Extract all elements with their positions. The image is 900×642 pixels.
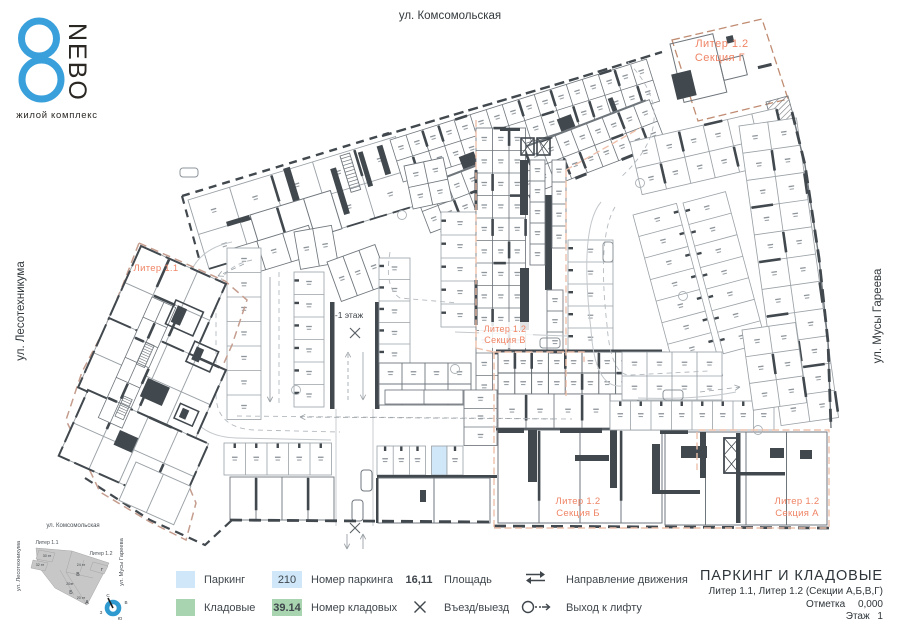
svg-text:ПАРКИНГ И КЛАДОВЫЕ: ПАРКИНГ И КЛАДОВЫЕ bbox=[700, 568, 883, 584]
svg-text:Въезд/выезд: Въезд/выезд bbox=[444, 602, 510, 614]
svg-text:Номер паркинга: Номер паркинга bbox=[311, 574, 394, 586]
svg-text:Литер 1.1: Литер 1.1 bbox=[134, 263, 179, 274]
svg-text:Этаж 1: Этаж 1 bbox=[846, 611, 884, 622]
svg-text:NEBO: NEBO bbox=[63, 23, 91, 102]
svg-text:А: А bbox=[85, 600, 89, 606]
svg-text:ул. Мусы Гареева: ул. Мусы Гареева bbox=[119, 537, 125, 586]
svg-text:20 эт: 20 эт bbox=[77, 596, 86, 600]
svg-text:Литер 1.2: Литер 1.2 bbox=[556, 496, 601, 507]
svg-text:З: З bbox=[100, 610, 103, 615]
svg-text:-1 этаж: -1 этаж bbox=[335, 310, 364, 320]
svg-text:Секция Б: Секция Б bbox=[556, 508, 599, 519]
svg-text:20эт: 20эт bbox=[66, 582, 74, 586]
svg-text:жилой комплекс: жилой комплекс bbox=[16, 110, 97, 121]
svg-text:Литер 1.2: Литер 1.2 bbox=[775, 496, 820, 507]
svg-text:ул. Комсомольская: ул. Комсомольская bbox=[399, 10, 501, 22]
svg-text:Литер 1.2: Литер 1.2 bbox=[484, 324, 527, 334]
svg-text:210: 210 bbox=[278, 574, 296, 586]
svg-text:Литер 1.2: Литер 1.2 bbox=[695, 38, 748, 50]
svg-text:Площадь: Площадь bbox=[444, 574, 492, 586]
svg-text:В: В bbox=[124, 600, 127, 605]
svg-text:Секция В: Секция В bbox=[484, 335, 525, 345]
svg-text:Литер 1.1, Литер 1.2 (Секции А: Литер 1.1, Литер 1.2 (Секции А,Б,В,Г) bbox=[709, 586, 883, 597]
svg-text:Выход к лифту: Выход к лифту bbox=[566, 602, 642, 614]
svg-text:ул. Лесотехникума: ул. Лесотехникума bbox=[16, 540, 22, 591]
svg-text:24 эт: 24 эт bbox=[77, 563, 86, 567]
svg-text:32 эт: 32 эт bbox=[36, 563, 45, 567]
svg-text:Ю: Ю bbox=[118, 616, 123, 621]
svg-text:Отметка 0,000: Отметка 0,000 bbox=[806, 599, 883, 610]
svg-text:Секция Г: Секция Г bbox=[695, 52, 745, 64]
svg-text:Направление движения: Направление движения bbox=[566, 574, 688, 586]
svg-text:16,11: 16,11 bbox=[406, 574, 433, 586]
svg-text:Секция А: Секция А bbox=[775, 508, 819, 519]
svg-text:В: В bbox=[76, 572, 80, 578]
svg-text:Кладовые: Кладовые bbox=[204, 602, 255, 614]
svg-text:Б: Б bbox=[69, 590, 73, 596]
svg-text:Литер 1.2: Литер 1.2 bbox=[89, 551, 112, 557]
svg-text:39.14: 39.14 bbox=[273, 602, 301, 614]
svg-text:30 эт: 30 эт bbox=[43, 554, 52, 558]
svg-text:Паркинг: Паркинг bbox=[204, 574, 245, 586]
svg-text:Номер кладовых: Номер кладовых bbox=[311, 602, 398, 614]
svg-text:ул. Комсомольская: ул. Комсомольская bbox=[46, 523, 99, 529]
svg-text:Литер 1.1: Литер 1.1 bbox=[35, 540, 58, 546]
svg-text:ул. Лесотехникума: ул. Лесотехникума bbox=[15, 261, 27, 361]
svg-text:ул. Мусы Гареева: ул. Мусы Гареева bbox=[872, 268, 884, 363]
